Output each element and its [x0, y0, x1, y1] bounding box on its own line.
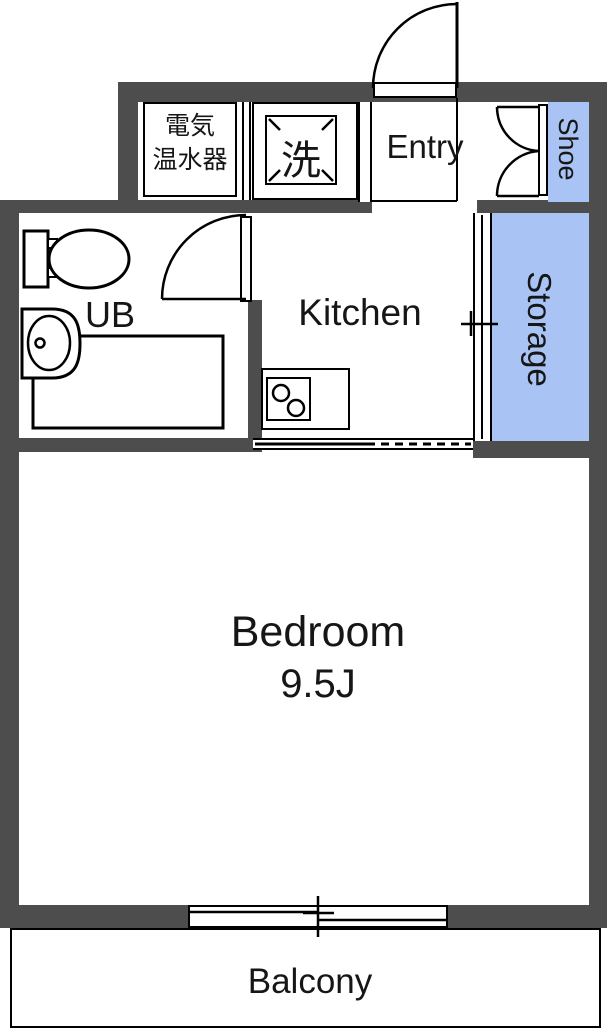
- floor-plan: Entry Kitchen UB Bedroom 9.5J Balcony Sh…: [0, 0, 611, 1035]
- wall-ub-bottom: [19, 438, 250, 452]
- entry-label: Entry: [360, 128, 490, 166]
- ub-door-frame: [240, 216, 252, 302]
- wall-upper-left: [118, 82, 138, 213]
- shoe-label: Shoe: [553, 89, 583, 209]
- washer-label: 洗: [265, 128, 337, 186]
- shoe-door-column: [538, 104, 548, 196]
- wall-top: [118, 82, 607, 102]
- wall-storage-bottom: [473, 441, 589, 458]
- shoe-double-door: [497, 107, 539, 196]
- bedroom-window: [188, 905, 448, 928]
- bedroom-label: Bedroom: [168, 608, 468, 657]
- wall-left: [0, 213, 19, 928]
- bathtub: [33, 336, 223, 428]
- water-heater-label-line2: 温水器: [145, 144, 235, 178]
- storage-sliding-door: [473, 213, 492, 441]
- balcony-label: Balcony: [160, 962, 460, 1002]
- stove: [266, 377, 311, 421]
- wall-bottom-right: [448, 905, 607, 928]
- toilet: [24, 230, 129, 288]
- kitchen-label: Kitchen: [260, 292, 460, 334]
- water-heater-label: 電気 温水器: [145, 110, 235, 178]
- ub-label: UB: [75, 294, 145, 336]
- kitchen-bedroom-divider: [253, 438, 473, 450]
- sink: [22, 309, 80, 378]
- partition-heater-washer: [242, 102, 251, 200]
- wall-entry-strip: [0, 200, 372, 213]
- water-heater-label-line1: 電気: [145, 110, 235, 144]
- storage-label: Storage: [520, 229, 558, 429]
- wall-bottom-left: [0, 905, 188, 928]
- wall-right: [589, 82, 607, 928]
- entry-door-leaf: [373, 82, 457, 98]
- ub-door: [162, 215, 246, 299]
- bedroom-size-label: 9.5J: [168, 662, 468, 707]
- entry-door: [373, 2, 457, 88]
